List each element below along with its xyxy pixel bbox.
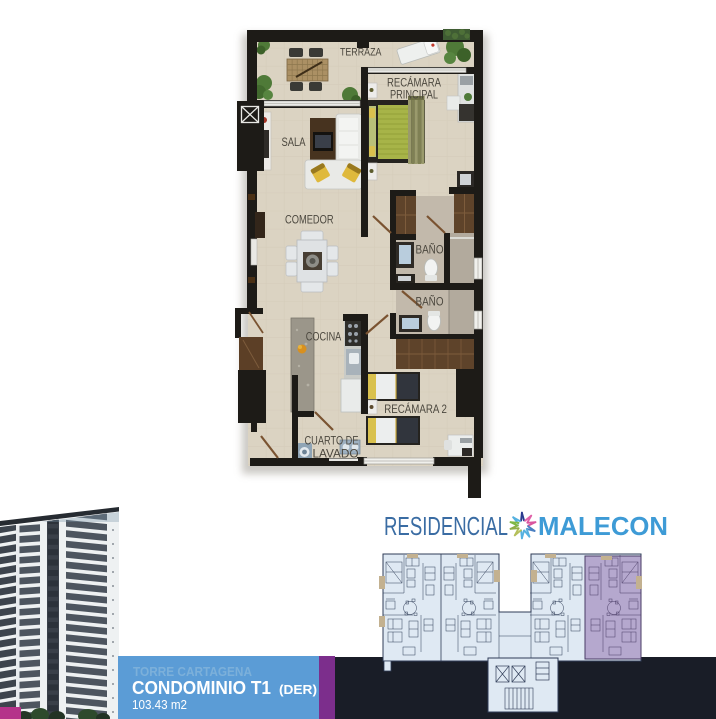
svg-text:RECÁMARA: RECÁMARA <box>387 77 441 90</box>
svg-text:LAVADO: LAVADO <box>313 447 359 461</box>
svg-text:CUARTO DE: CUARTO DE <box>305 434 359 448</box>
svg-text:103.43 m2: 103.43 m2 <box>132 697 187 712</box>
svg-text:CONDOMINIO T1: CONDOMINIO T1 <box>132 677 271 698</box>
svg-text:COCINA: COCINA <box>306 332 342 344</box>
svg-text:RECÁMARA 2: RECÁMARA 2 <box>384 401 447 416</box>
svg-text:TERRAZA: TERRAZA <box>340 47 382 59</box>
svg-text:PRINCIPAL: PRINCIPAL <box>390 90 438 102</box>
svg-text:BAÑO: BAÑO <box>416 243 444 256</box>
svg-text:SALA: SALA <box>282 137 306 149</box>
svg-text:(DER): (DER) <box>279 682 317 697</box>
svg-text:BAÑO: BAÑO <box>416 296 444 309</box>
svg-text:RESIDENCIAL: RESIDENCIAL <box>384 513 508 541</box>
svg-text:COMEDOR: COMEDOR <box>285 213 334 227</box>
svg-text:MALECON: MALECON <box>538 513 668 541</box>
